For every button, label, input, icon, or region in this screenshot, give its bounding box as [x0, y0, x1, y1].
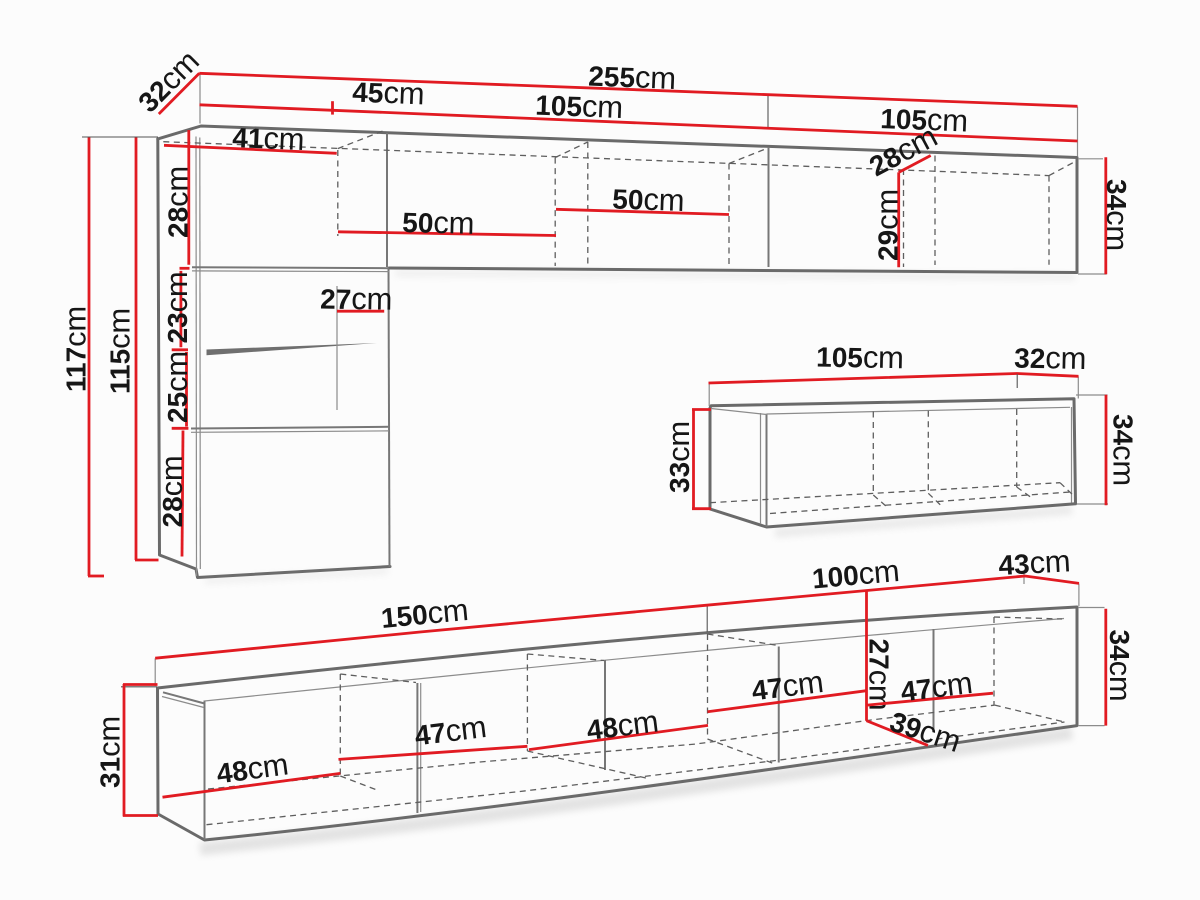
svg-text:50cm: 50cm [612, 181, 685, 218]
svg-text:117cm: 117cm [58, 306, 93, 392]
svg-text:31cm: 31cm [92, 716, 127, 788]
svg-text:27cm: 27cm [320, 281, 392, 317]
svg-text:28cm: 28cm [160, 166, 195, 238]
svg-text:41cm: 41cm [232, 119, 305, 157]
svg-text:34cm: 34cm [1107, 414, 1142, 486]
svg-text:50cm: 50cm [402, 204, 475, 241]
svg-text:43cm: 43cm [998, 543, 1072, 582]
svg-text:115cm: 115cm [102, 308, 137, 394]
svg-text:29cm: 29cm [870, 189, 905, 261]
svg-text:27cm: 27cm [863, 639, 898, 711]
svg-text:105cm: 105cm [535, 87, 624, 125]
svg-text:25cm: 25cm [159, 351, 194, 423]
svg-text:28cm: 28cm [154, 456, 189, 528]
svg-text:34cm: 34cm [1103, 630, 1138, 702]
svg-text:34cm: 34cm [1100, 179, 1135, 251]
svg-text:45cm: 45cm [352, 74, 425, 112]
svg-text:33cm: 33cm [661, 421, 696, 493]
svg-text:23cm: 23cm [159, 272, 194, 344]
svg-text:32cm: 32cm [1014, 340, 1087, 376]
svg-text:105cm: 105cm [816, 339, 904, 376]
